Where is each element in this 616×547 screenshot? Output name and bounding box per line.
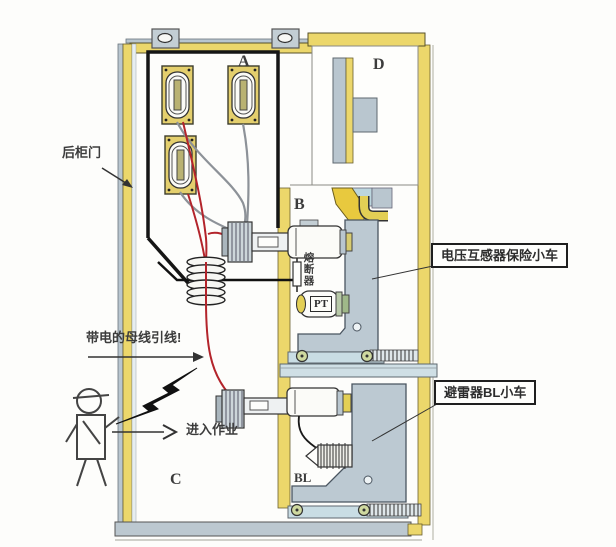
divider-shelf xyxy=(280,364,437,377)
compartment-d-label: D xyxy=(373,57,385,73)
compartment-a-label: A xyxy=(238,54,250,70)
compartment-c-label: C xyxy=(170,472,182,488)
compartment-b-label: B xyxy=(294,197,305,213)
arrester-trolley-callout: 避雷器BL小车 xyxy=(434,380,536,405)
busbar-elbow xyxy=(332,188,392,222)
rear-door-wall xyxy=(118,44,136,532)
bushing-insulator-1 xyxy=(162,66,193,124)
bottom-frame xyxy=(115,522,422,540)
live-busbar-warning-label: 带电的母线引线! xyxy=(86,331,181,344)
rear-door-label: 后柜门 xyxy=(62,146,101,159)
enter-work-label: 进入作业 xyxy=(186,423,238,436)
bl-trolley-rack xyxy=(367,504,421,516)
surge-arrester xyxy=(299,416,352,469)
bl-label: BL xyxy=(294,471,311,484)
lifting-lug-left xyxy=(152,29,179,48)
person-figure xyxy=(66,389,119,486)
pt-fuse xyxy=(293,262,301,286)
lifting-lug-right xyxy=(272,29,299,48)
fuse-label: 熔断器 xyxy=(303,252,314,287)
pt-trolley-callout: 电压互感器保险小车 xyxy=(431,243,568,268)
pt-label: PT xyxy=(310,296,332,312)
right-wall xyxy=(418,45,430,525)
diagram-stage: 后柜门 带电的母线引线! 进入作业 A B C D 熔断器 PT BL 电压互感… xyxy=(0,0,616,547)
bushing-insulator-2 xyxy=(228,66,259,124)
compartment-d xyxy=(308,33,425,185)
pt-trolley-rack xyxy=(370,350,418,361)
